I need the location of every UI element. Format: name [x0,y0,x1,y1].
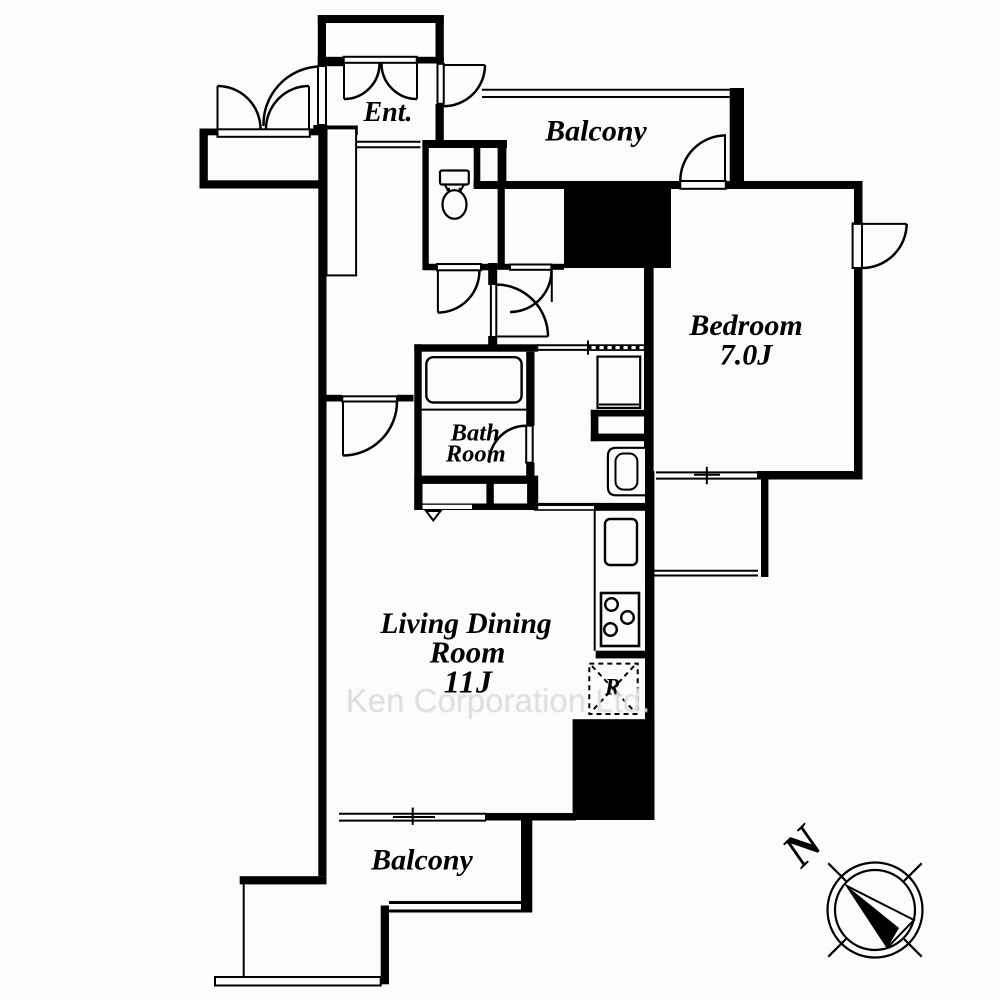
svg-text:Balcony: Balcony [544,115,647,148]
svg-text:Ken Corporation Ltd.: Ken Corporation Ltd. [346,682,651,719]
svg-text:Room: Room [445,441,506,468]
svg-text:Bedroom: Bedroom [688,309,802,342]
svg-text:7.0J: 7.0J [720,339,774,372]
svg-text:Ent.: Ent. [362,97,412,128]
svg-text:Balcony: Balcony [370,844,473,877]
